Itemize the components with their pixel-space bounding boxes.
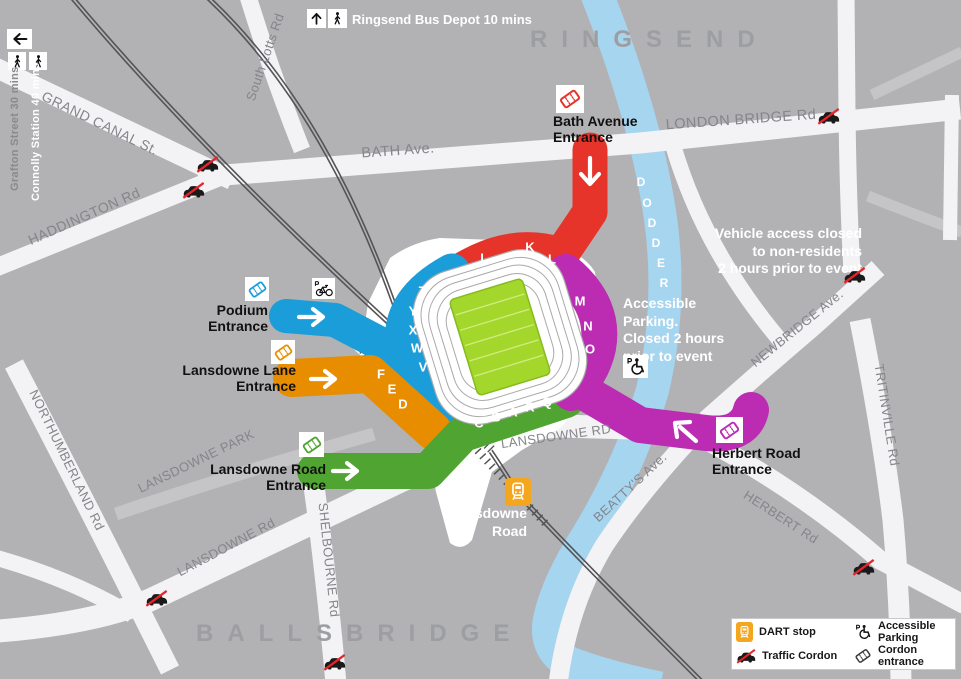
stand-section-letter: O [585,342,595,357]
stand-section-letter: V [419,360,428,375]
stand-section-letter: R [525,400,534,415]
river-label-letter: O [642,196,651,210]
legend-label: Traffic Cordon [762,650,837,662]
legend-item-cordon: Cordon entrance [854,644,951,668]
stand-section-letter: B [491,410,500,425]
bus-depot-note: Ringsend Bus Depot 10 mins [352,12,532,28]
traffic-cordon-icon [182,181,205,199]
stand-section-letter: F [377,367,385,382]
entrance-label-herbert: Herbert Road Entrance [712,445,801,477]
bike-parking-icon [312,278,335,299]
cordon-entrance-icon-lansdowne-lane [271,340,295,364]
traffic-cordon-icon [323,653,346,671]
stand-section-letter: Z [418,284,426,299]
stand-section-letter: L [548,252,556,267]
walk-west-arrow-icon [7,29,32,49]
stand-section-letter: X [409,323,418,338]
entrance-label-lansdowne-lane: Lansdowne Lane Entrance [182,362,296,394]
traffic-cordon-icon [852,558,875,576]
dart-stop-icon [505,478,531,506]
stadium-access-map: RINGSEND BALLSBRIDGE GRAND CANAL St. Sou… [0,0,961,679]
cordon-entrance-icon-lansdowne-road [299,432,324,457]
entrance-label-bath: Bath Avenue Entrance [553,113,638,145]
traffic-cordon-icon [817,107,840,125]
river-label-letter: R [660,276,669,290]
walk-time-connolly: Connolly Station 40 mins [30,76,42,201]
stand-section-letter: K [525,240,534,255]
legend-label: Cordon entrance [878,644,951,668]
area-label-ringsend: RINGSEND [530,26,769,54]
stand-section-letter: A [508,405,517,420]
legend-label: Accessible Parking [878,620,951,644]
stand-section-letter: Q [542,395,552,410]
cordon-entrance-icon [854,647,872,665]
traffic-cordon-icon [736,648,756,664]
cordon-entrance-icon-herbert [716,417,743,443]
river-label-letter: D [652,236,661,250]
river-label-letter: D [637,175,646,189]
legend-item-traffic: Traffic Cordon [736,648,854,664]
stand-section-letter: N [583,319,592,334]
legend-label: DART stop [759,626,816,638]
accessible-parking-icon [854,623,872,641]
stand-section-letter: I [480,251,484,266]
stand-section-letter: M [575,294,586,309]
traffic-cordon-icon [196,155,219,173]
entrance-label-lansdowne-road: Lansdowne Road Entrance [210,461,326,493]
dart-stop-icon [736,622,753,642]
stand-section-letter: E [388,382,397,397]
vehicle-access-note: Vehicle access closed to non-residents 2… [715,225,862,278]
pedestrian-icon [328,9,347,28]
walk-time-grafton: Grafton Street 30 mins [9,76,21,191]
map-legend: DART stop Accessible Parking Traffic Cor… [731,618,956,670]
stand-section-letter: W [411,341,423,356]
traffic-cordon-icon [145,589,168,607]
entrance-label-podium: Podium Entrance [208,302,268,334]
cordon-entrance-icon-bath [556,85,584,113]
station-label-lansdowne-road: Lansdowne Road [450,505,527,540]
stand-section-letter: C [474,416,483,431]
map-canvas [0,0,961,679]
traffic-cordon-icon [843,266,866,284]
area-label-ballsbridge: BALLSBRIDGE [196,620,523,648]
river-label-letter: E [657,256,665,270]
river-label-letter: D [648,216,657,230]
stand-section-letter: Y [409,304,418,319]
legend-item-dart: DART stop [736,622,854,642]
accessible-parking-icon [623,355,648,378]
stand-section-letter: D [398,397,407,412]
walk-north-arrow-icon [307,9,326,28]
legend-item-accessible: Accessible Parking [854,620,951,644]
cordon-entrance-icon-podium [245,277,269,301]
